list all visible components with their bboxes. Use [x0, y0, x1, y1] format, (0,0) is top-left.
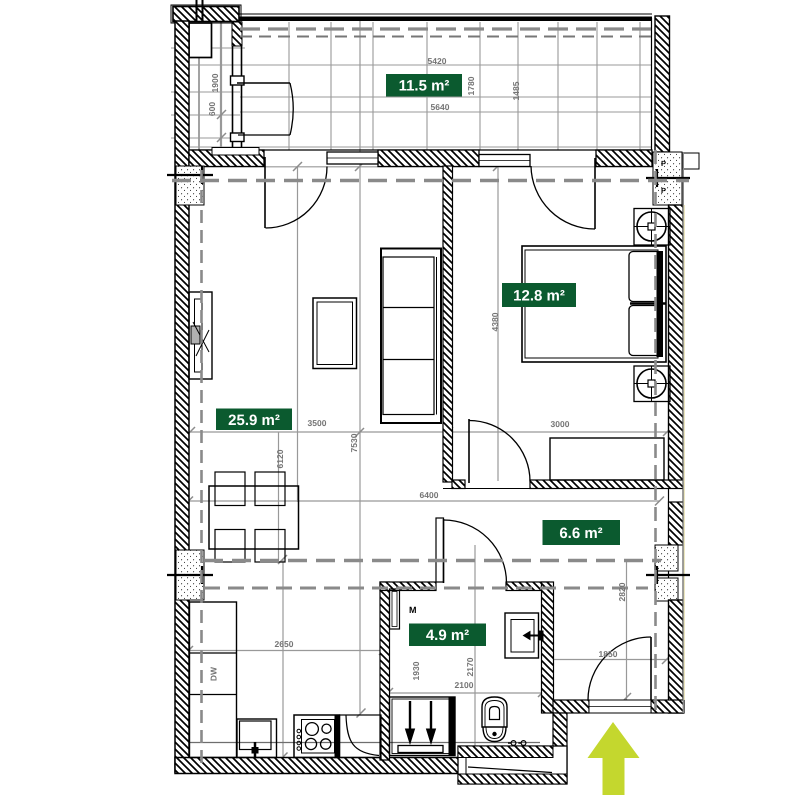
- svg-text:2170: 2170: [465, 657, 475, 676]
- svg-text:1485: 1485: [511, 81, 521, 100]
- svg-text:1780: 1780: [466, 76, 476, 95]
- svg-text:6120: 6120: [275, 449, 285, 468]
- svg-text:600: 600: [207, 102, 217, 116]
- svg-text:6.6 m²: 6.6 m²: [559, 525, 602, 542]
- svg-text:25.9 m²: 25.9 m²: [228, 412, 280, 429]
- svg-text:P: P: [661, 186, 666, 195]
- svg-text:DW: DW: [209, 666, 219, 681]
- svg-text:1930: 1930: [411, 661, 421, 680]
- svg-text:1850: 1850: [599, 649, 618, 659]
- svg-text:1900: 1900: [210, 73, 220, 92]
- svg-text:2100: 2100: [455, 680, 474, 690]
- svg-text:2820: 2820: [617, 582, 627, 601]
- svg-text:11.5 m²: 11.5 m²: [399, 78, 450, 95]
- svg-text:12.8 m²: 12.8 m²: [513, 288, 565, 305]
- svg-text:4380: 4380: [490, 312, 500, 331]
- svg-text:3000: 3000: [551, 419, 570, 429]
- svg-text:6400: 6400: [420, 490, 439, 500]
- svg-text:5640: 5640: [431, 102, 450, 112]
- svg-text:M: M: [409, 605, 417, 615]
- svg-text:4.9 m²: 4.9 m²: [426, 627, 469, 644]
- svg-text:5420: 5420: [428, 56, 447, 66]
- svg-text:2650: 2650: [275, 639, 294, 649]
- svg-text:7530: 7530: [349, 433, 359, 452]
- svg-text:P: P: [661, 159, 666, 168]
- svg-text:3500: 3500: [308, 418, 327, 428]
